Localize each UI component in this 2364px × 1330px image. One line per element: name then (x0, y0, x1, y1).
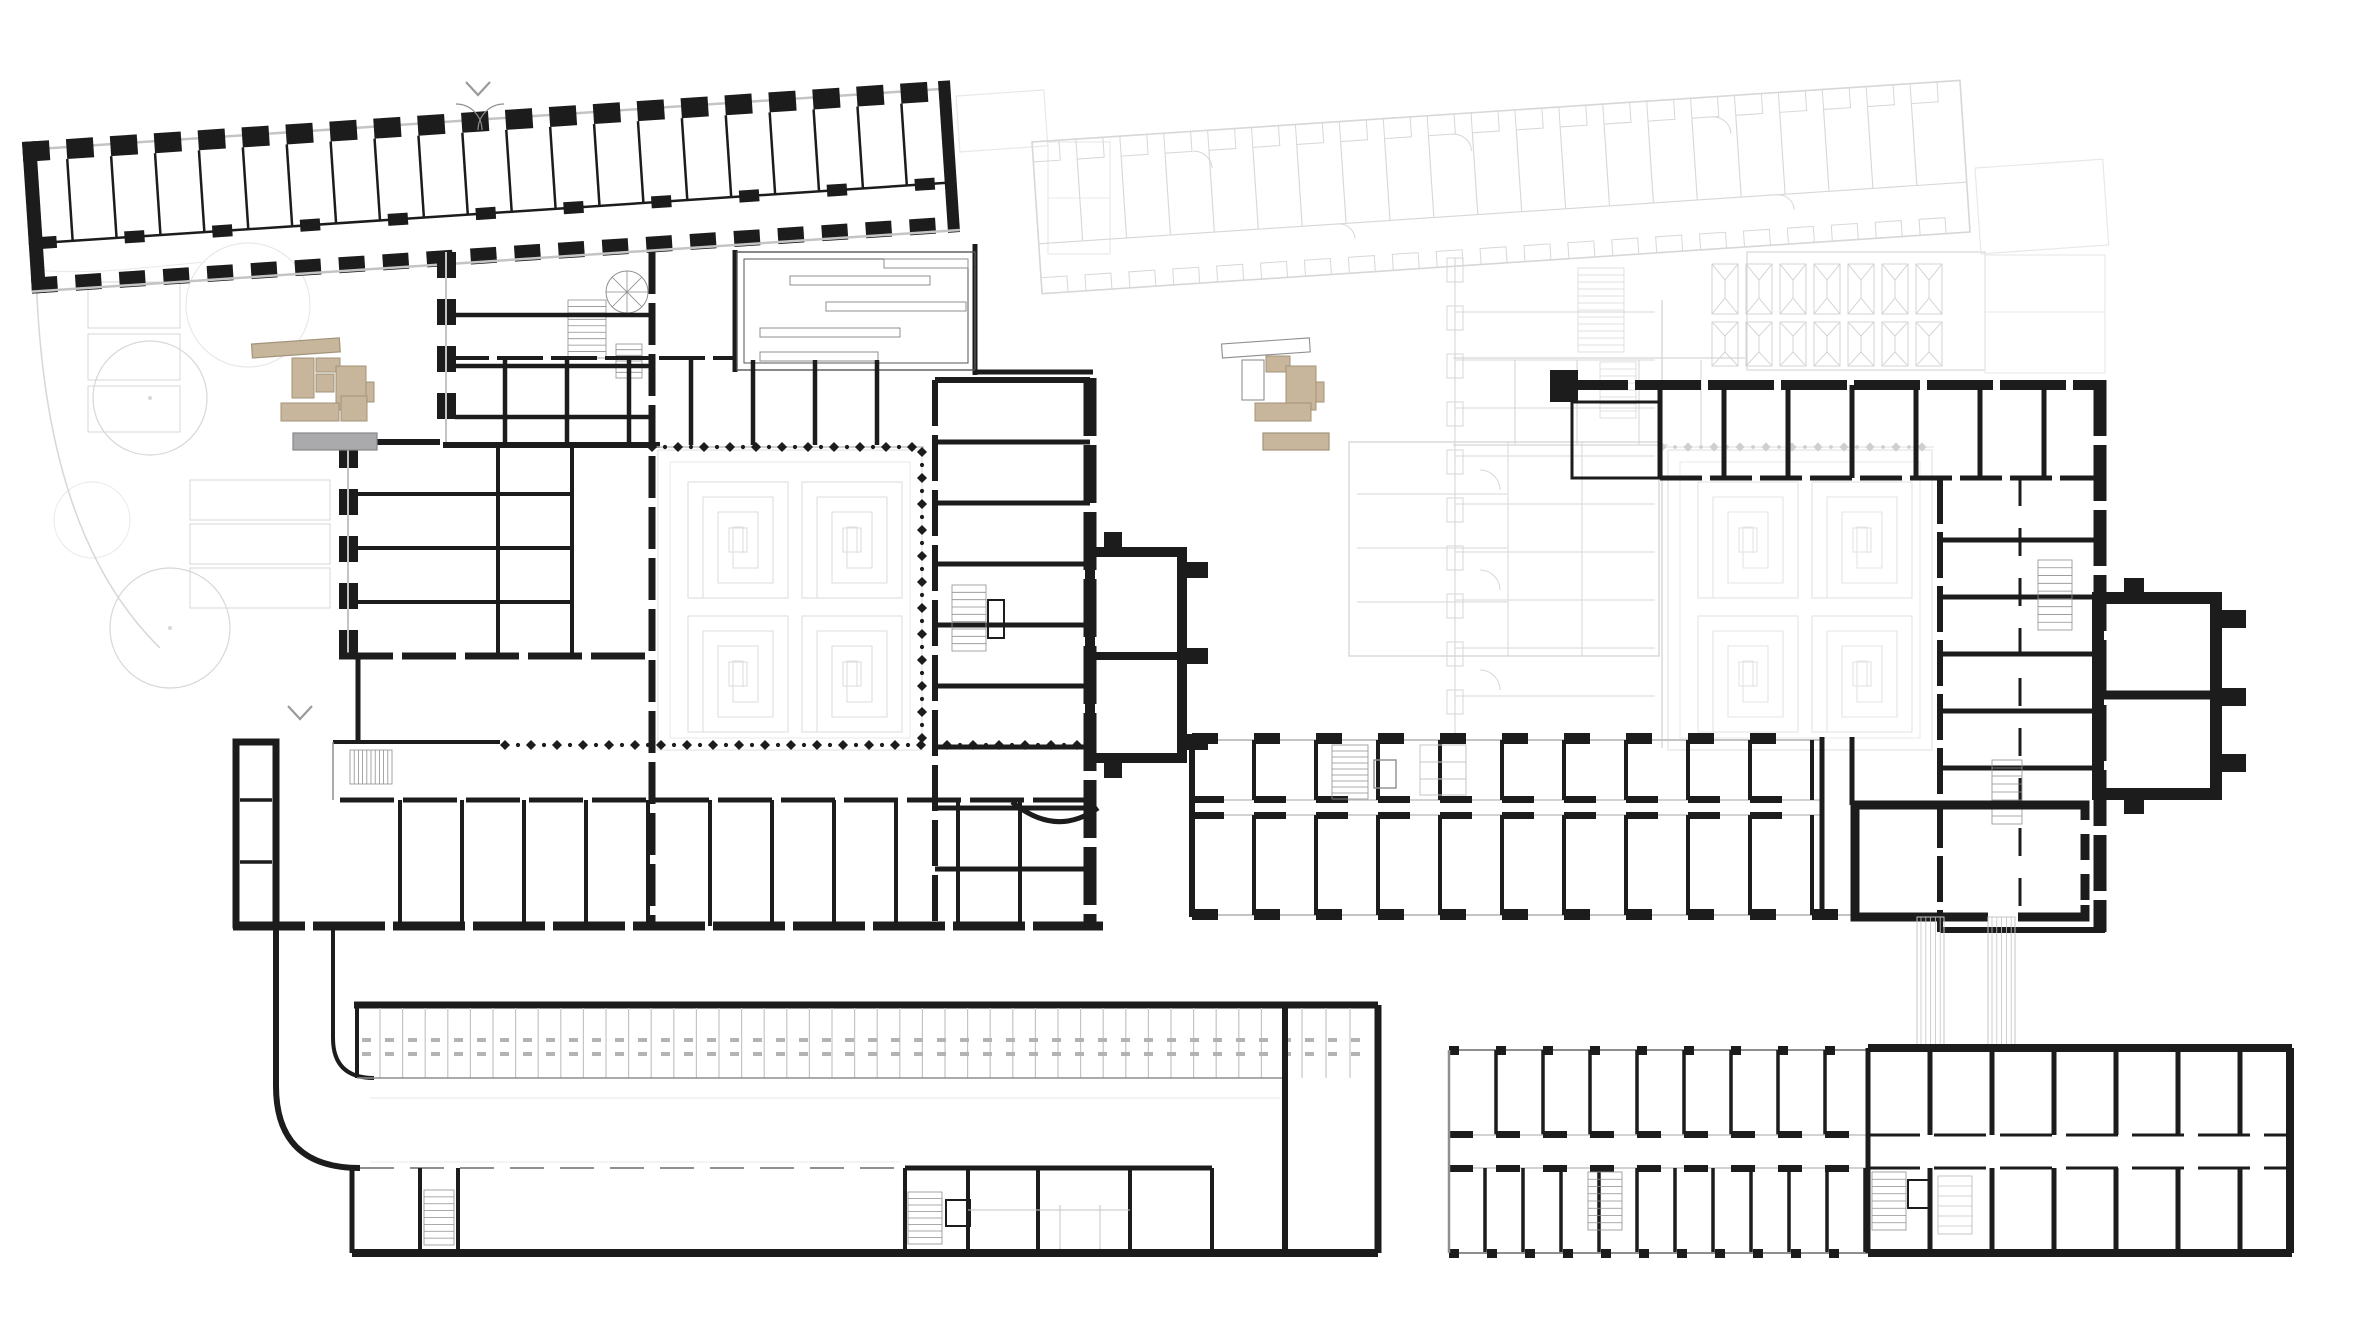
left-plan-section-markers (288, 82, 490, 719)
right-plan-courtyard-ghost (1657, 442, 1934, 750)
left-plan-south-wing (233, 742, 1103, 926)
right-plan-diagonal-wing-ghost (1032, 80, 1970, 293)
left-plan-walkway (276, 925, 374, 1168)
left-plan-bottom-building (352, 1005, 1378, 1253)
right-plan-mid-building (1192, 733, 1855, 920)
right-plan-east-wing (1940, 380, 2105, 932)
right-plan-site-key (1222, 338, 1329, 450)
left-plan-north-block (443, 104, 1093, 445)
left-plan-ghost-fragments (956, 90, 1110, 254)
left-plan-garden (36, 243, 330, 688)
left-plan-west-wing (339, 252, 652, 930)
architectural-plan-sheet (0, 0, 2364, 1330)
right-plan-cross-projection (2098, 578, 2246, 814)
floor-plan-svg (0, 0, 2364, 1330)
left-plan-courtyard (500, 442, 1092, 750)
right-plan-bottom-building (1449, 1046, 2292, 1258)
left-plan-diagonal-wing (22, 80, 960, 293)
left-plan-site-key (252, 338, 377, 450)
